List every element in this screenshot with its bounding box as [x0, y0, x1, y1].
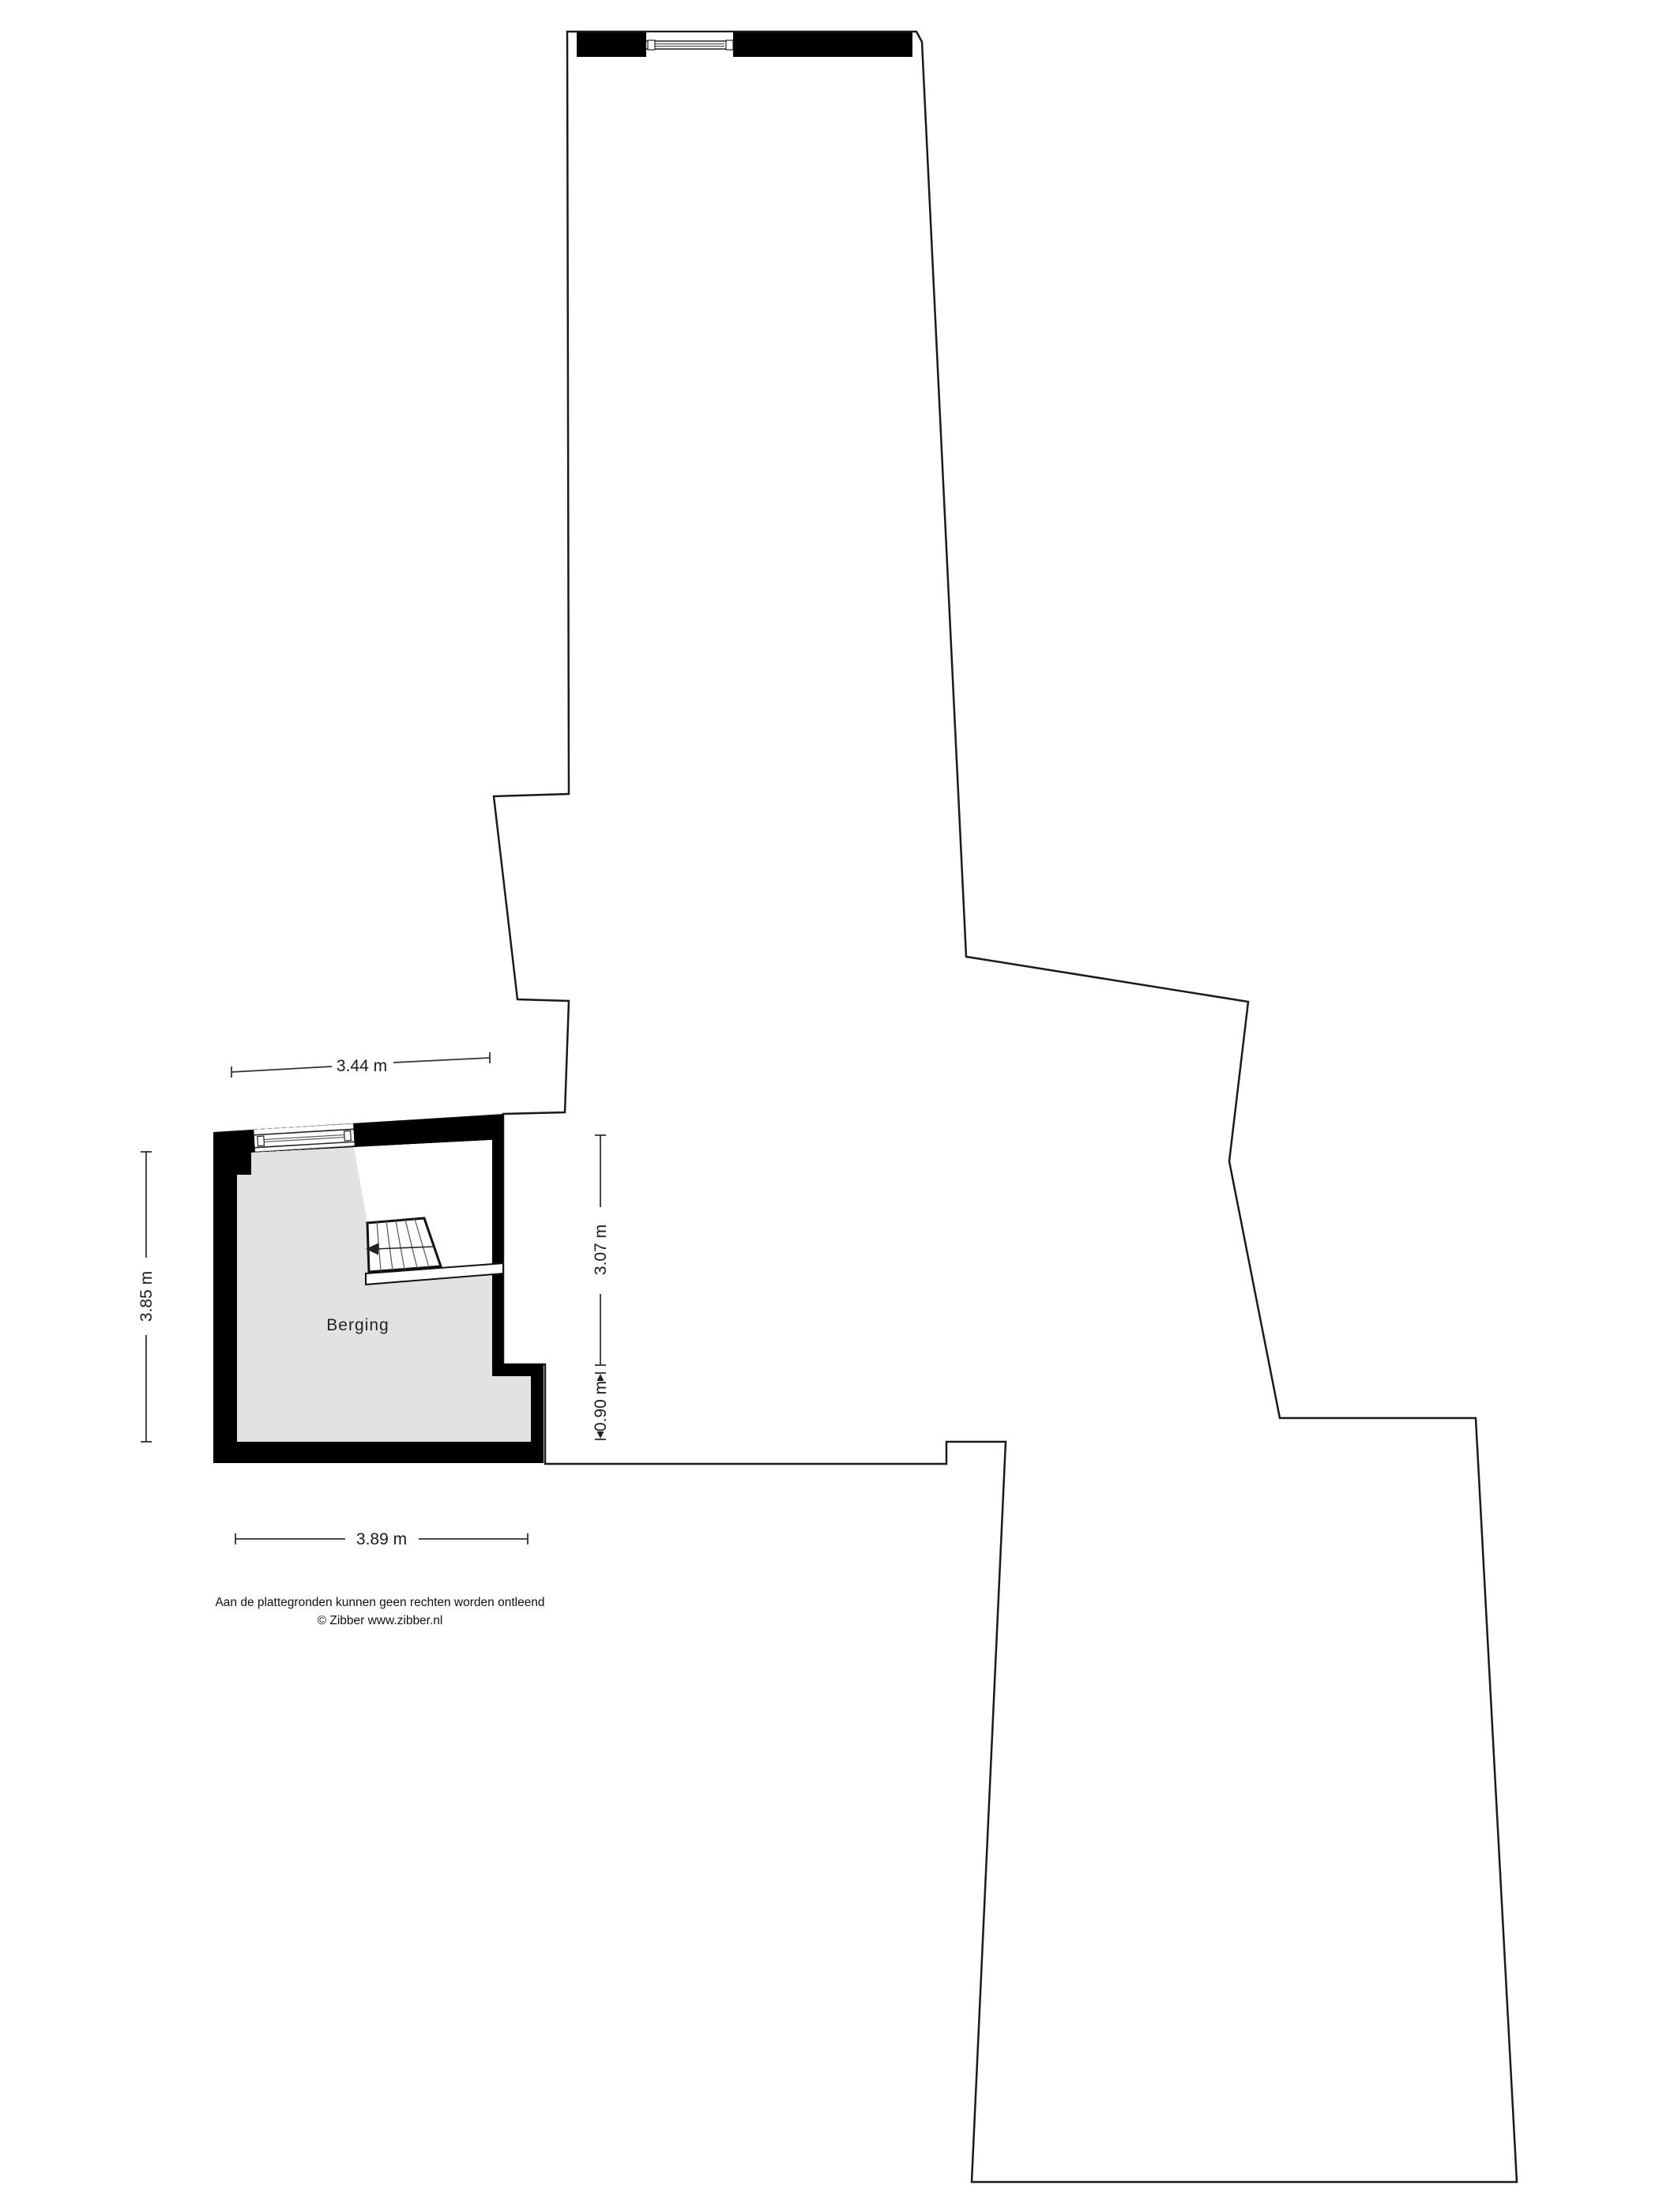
berging-window-jamb-right: [344, 1131, 352, 1141]
dimension-label-right-upper: 3.07 m: [592, 1224, 610, 1275]
dimension-bottom-width: 3.89 m: [235, 1530, 528, 1548]
footer: Aan de plattegronden kunnen geen rechten…: [215, 1596, 544, 1627]
dimension-top-width: 3.44 m: [231, 1052, 490, 1078]
top-window-jamb-right: [726, 40, 733, 50]
plot-outline: [494, 32, 1517, 2182]
top-window-opening: [646, 32, 733, 57]
top-wall-segment: [577, 32, 912, 57]
berging-window-jamb-left: [258, 1136, 265, 1145]
dimension-label-right-lower: 0.90 m: [592, 1381, 610, 1431]
plot-boundary-line: [494, 32, 1517, 2182]
room-label: Berging: [326, 1316, 389, 1334]
dimension-right-lower-height: 0.90 m: [592, 1373, 610, 1439]
dim-line: [231, 1066, 332, 1072]
top-window-icon: [646, 32, 733, 57]
dimension-label-top: 3.44 m: [337, 1057, 387, 1075]
floorplan-canvas: Berging 3.44 m 3.85 m 3.07 m: [0, 0, 1659, 2212]
berging-room: Berging: [213, 1114, 544, 1463]
copyright-text: © Zibber www.zibber.nl: [318, 1614, 443, 1627]
plot-top-wall: [577, 32, 912, 57]
dimension-left-height: 3.85 m: [137, 1152, 156, 1442]
dim-line: [393, 1058, 490, 1063]
top-window-jamb-left: [648, 40, 655, 50]
dimension-label-bottom: 3.89 m: [356, 1530, 407, 1548]
dimension-label-left: 3.85 m: [137, 1271, 156, 1322]
disclaimer-text: Aan de plattegronden kunnen geen rechten…: [215, 1596, 544, 1609]
